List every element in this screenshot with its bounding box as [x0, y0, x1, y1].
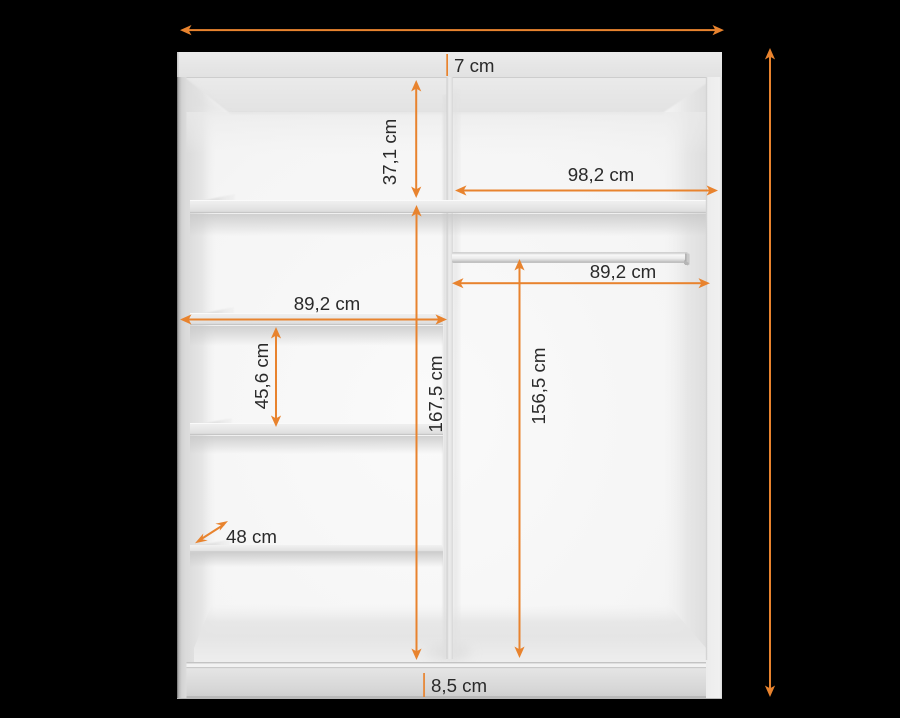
svg-text:48 cm: 48 cm	[226, 526, 277, 547]
svg-text:89,2 cm: 89,2 cm	[590, 261, 656, 282]
svg-text:8,5 cm: 8,5 cm	[431, 675, 487, 696]
svg-text:37,1 cm: 37,1 cm	[379, 119, 400, 185]
svg-text:167,5 cm: 167,5 cm	[425, 356, 446, 433]
svg-text:156,5 cm: 156,5 cm	[528, 348, 549, 425]
svg-text:89,2 cm: 89,2 cm	[294, 293, 360, 314]
svg-text:45,6 cm: 45,6 cm	[251, 343, 272, 409]
svg-text:7 cm: 7 cm	[454, 55, 495, 76]
svg-text:98,2 cm: 98,2 cm	[568, 164, 634, 185]
